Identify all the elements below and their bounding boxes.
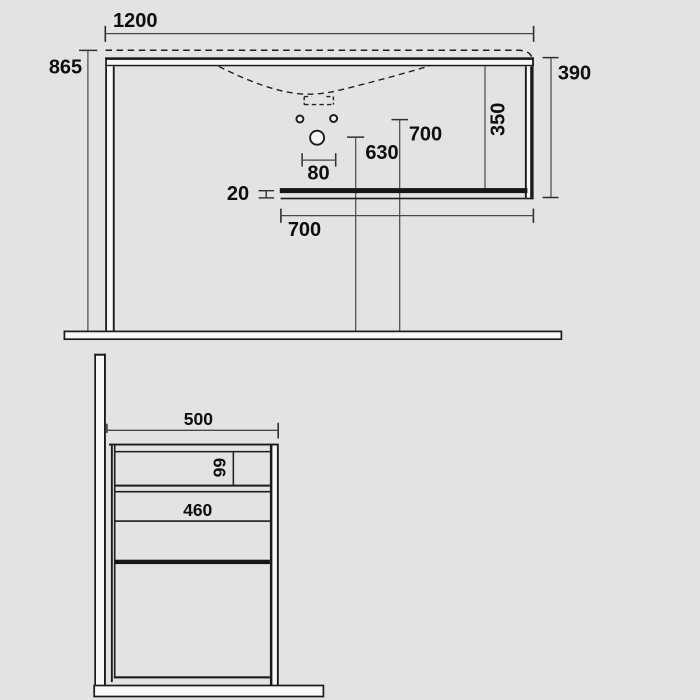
svg-text:1200: 1200 — [113, 10, 158, 32]
svg-text:20: 20 — [227, 183, 249, 205]
svg-text:700: 700 — [288, 219, 321, 241]
svg-text:500: 500 — [184, 409, 213, 429]
svg-text:390: 390 — [558, 63, 591, 85]
svg-text:865: 865 — [49, 57, 82, 79]
svg-text:350: 350 — [487, 103, 509, 136]
svg-text:66: 66 — [209, 458, 229, 478]
svg-text:700: 700 — [409, 124, 442, 146]
svg-text:460: 460 — [183, 500, 212, 520]
svg-text:80: 80 — [307, 163, 329, 185]
svg-text:630: 630 — [365, 142, 398, 164]
